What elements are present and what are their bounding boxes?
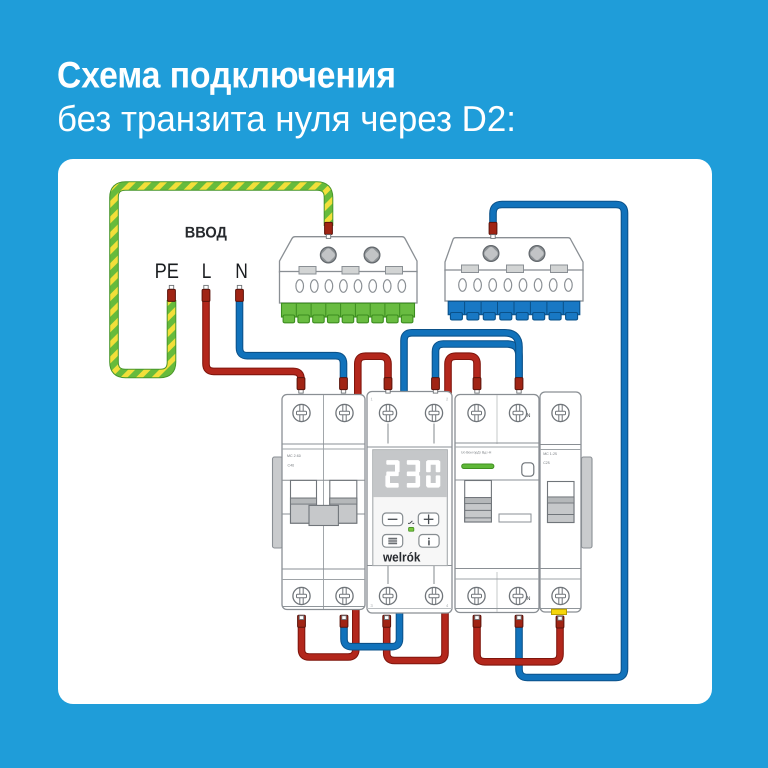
svg-text:ВВОД: ВВОД [185,224,227,241]
svg-text:MC 1-25: MC 1-25 [543,452,557,456]
svg-text:MC 2-60: MC 2-60 [287,454,301,458]
svg-text:C40: C40 [288,464,295,468]
svg-text:L: L [202,260,212,283]
svg-text:Схема подключения: Схема подключения [57,54,396,95]
svg-text:без транзита нуля через D2:: без транзита нуля через D2: [57,98,516,139]
svg-text:N: N [235,260,248,283]
svg-text:welrók: welrók [382,549,421,564]
svg-text:Uo ВекторДт Вдт-Н: Uo ВекторДт Вдт-Н [461,451,492,455]
svg-text:C25: C25 [543,461,550,465]
svg-text:PE: PE [155,260,179,283]
